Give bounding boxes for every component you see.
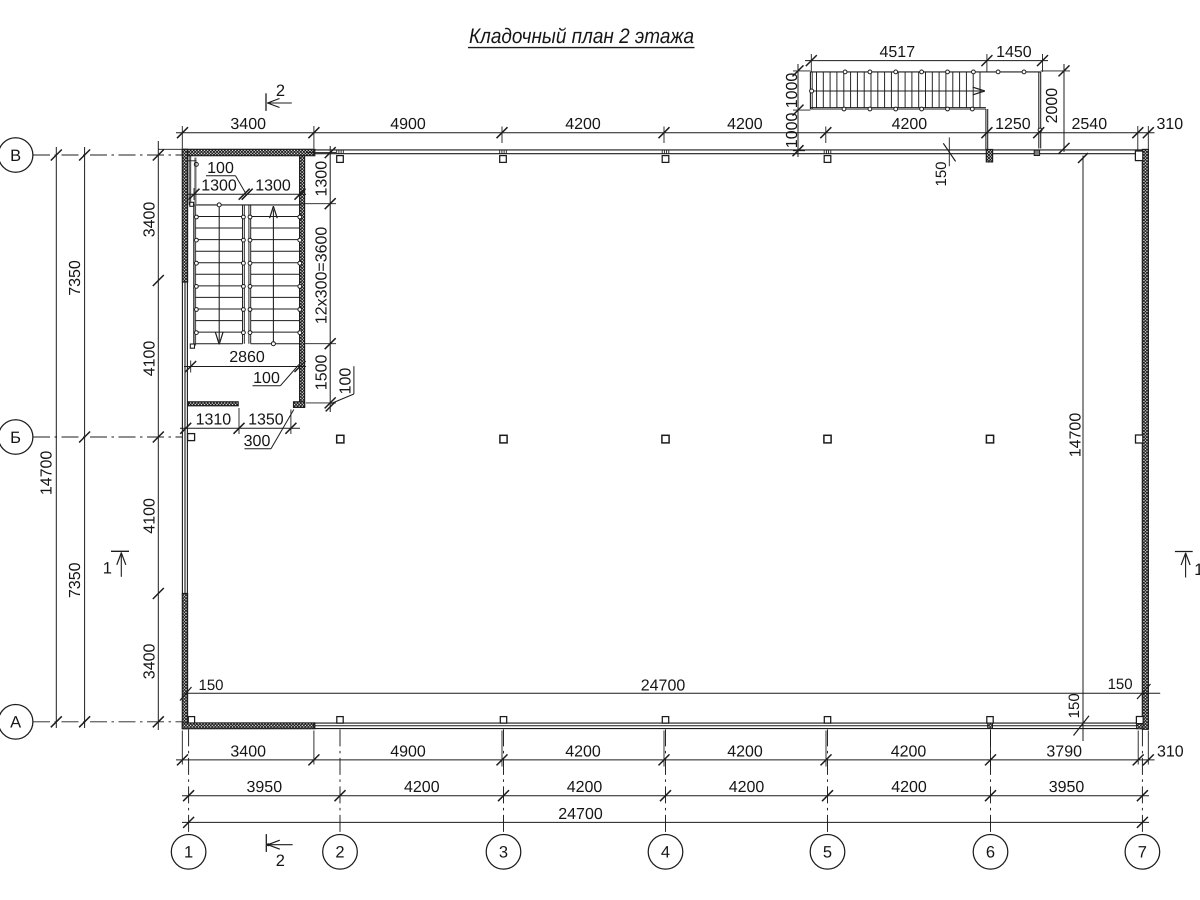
svg-text:3400: 3400 xyxy=(142,644,159,680)
svg-text:2000: 2000 xyxy=(1044,88,1061,124)
svg-text:6: 6 xyxy=(986,844,995,862)
svg-text:100: 100 xyxy=(253,370,280,387)
svg-text:4200: 4200 xyxy=(891,743,927,760)
svg-text:150: 150 xyxy=(1066,693,1083,718)
svg-text:1350: 1350 xyxy=(248,411,284,428)
svg-text:1500: 1500 xyxy=(313,355,330,391)
svg-text:А: А xyxy=(10,714,21,732)
svg-text:3: 3 xyxy=(499,844,508,862)
svg-text:12x300=3600: 12x300=3600 xyxy=(313,227,330,325)
svg-text:4100: 4100 xyxy=(142,341,159,377)
svg-text:3400: 3400 xyxy=(230,743,266,760)
svg-text:3400: 3400 xyxy=(142,202,159,238)
svg-text:1300: 1300 xyxy=(314,161,331,197)
svg-text:1000: 1000 xyxy=(784,73,801,109)
svg-text:1300: 1300 xyxy=(201,178,237,195)
svg-text:100: 100 xyxy=(337,368,354,395)
svg-text:4200: 4200 xyxy=(565,116,601,133)
svg-text:310: 310 xyxy=(1156,116,1183,133)
svg-text:150: 150 xyxy=(1108,676,1133,693)
svg-text:1: 1 xyxy=(1194,561,1200,579)
svg-text:7350: 7350 xyxy=(67,260,84,296)
svg-text:100: 100 xyxy=(207,160,234,177)
svg-text:4900: 4900 xyxy=(390,116,426,133)
svg-text:1450: 1450 xyxy=(996,44,1032,61)
svg-text:4900: 4900 xyxy=(390,743,426,760)
svg-text:Б: Б xyxy=(10,429,21,447)
svg-text:24700: 24700 xyxy=(558,806,603,823)
svg-text:4200: 4200 xyxy=(729,779,765,796)
svg-text:2: 2 xyxy=(335,844,344,862)
svg-text:4200: 4200 xyxy=(404,779,440,796)
svg-text:4200: 4200 xyxy=(565,743,601,760)
svg-text:4200: 4200 xyxy=(891,779,927,796)
svg-text:4517: 4517 xyxy=(880,44,916,61)
svg-text:4100: 4100 xyxy=(142,498,159,534)
svg-text:2540: 2540 xyxy=(1072,116,1108,133)
svg-text:7: 7 xyxy=(1138,844,1147,862)
svg-text:3950: 3950 xyxy=(247,779,283,796)
svg-text:1: 1 xyxy=(103,560,112,578)
svg-text:14700: 14700 xyxy=(1068,413,1085,458)
svg-text:Кладочный план 2 этажа: Кладочный план 2 этажа xyxy=(469,25,694,48)
svg-text:1300: 1300 xyxy=(255,178,291,195)
svg-text:В: В xyxy=(10,147,21,165)
svg-text:4: 4 xyxy=(661,844,670,862)
svg-text:1: 1 xyxy=(184,844,193,862)
svg-text:4200: 4200 xyxy=(727,116,763,133)
svg-text:24700: 24700 xyxy=(641,677,686,694)
svg-text:4200: 4200 xyxy=(567,779,603,796)
svg-text:3790: 3790 xyxy=(1046,743,1082,760)
svg-text:2: 2 xyxy=(276,852,285,870)
svg-text:300: 300 xyxy=(244,433,271,450)
svg-text:3400: 3400 xyxy=(230,116,266,133)
svg-text:2: 2 xyxy=(276,82,285,100)
svg-text:2860: 2860 xyxy=(229,349,265,366)
svg-text:150: 150 xyxy=(198,677,223,694)
svg-text:1250: 1250 xyxy=(995,116,1031,133)
svg-text:4200: 4200 xyxy=(727,743,763,760)
svg-text:1000: 1000 xyxy=(784,113,801,149)
svg-text:3950: 3950 xyxy=(1049,779,1085,796)
svg-text:4200: 4200 xyxy=(892,116,928,133)
svg-text:1310: 1310 xyxy=(196,411,232,428)
svg-text:150: 150 xyxy=(933,161,950,186)
svg-text:310: 310 xyxy=(1157,743,1184,760)
svg-text:14700: 14700 xyxy=(39,451,56,496)
svg-text:7350: 7350 xyxy=(67,562,84,598)
svg-text:5: 5 xyxy=(823,844,832,862)
